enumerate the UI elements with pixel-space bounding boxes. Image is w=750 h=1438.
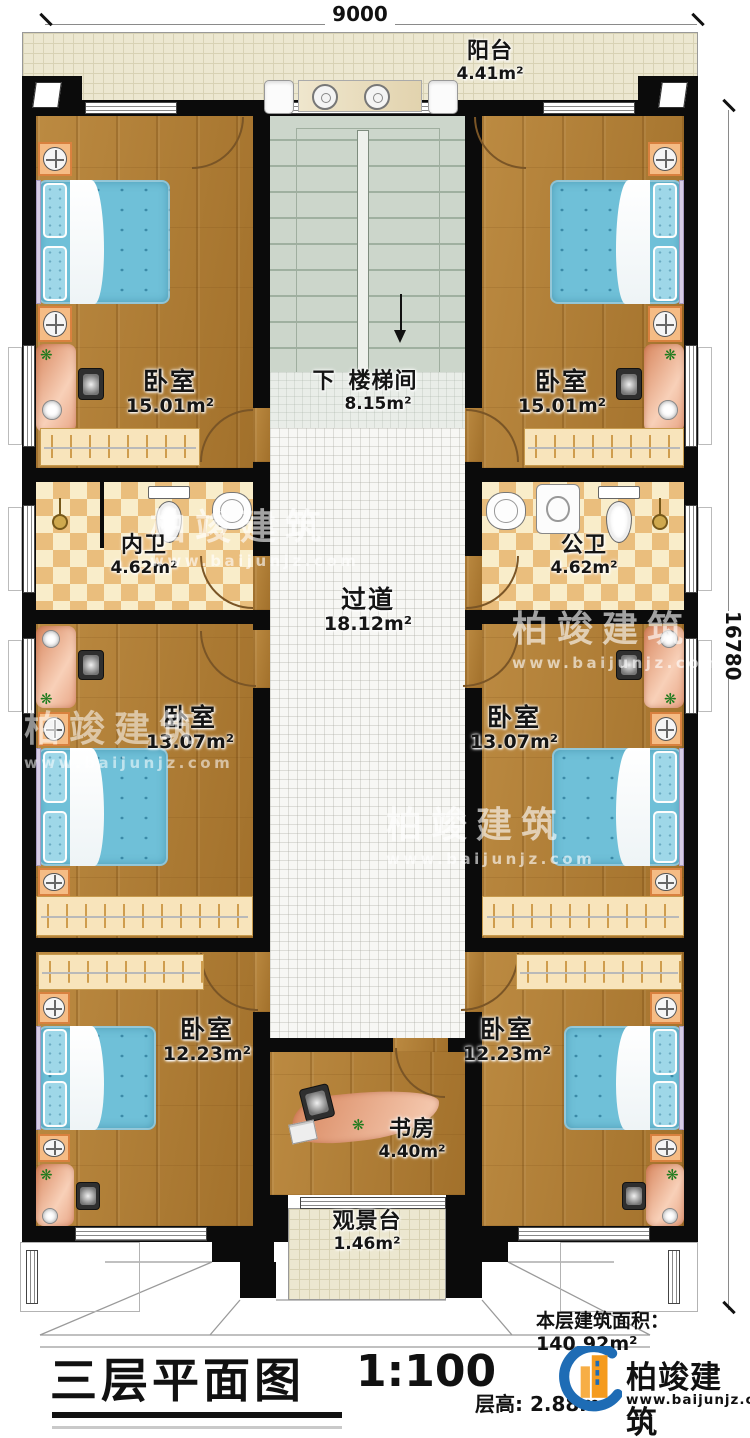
table-lamp-icon [653, 147, 677, 171]
corner-window [658, 82, 688, 108]
pillow-icon [653, 183, 677, 238]
nightstand [650, 1134, 682, 1162]
room-label-balcony: 阳台 4.41m² [430, 40, 550, 84]
threshold [253, 408, 270, 462]
table-lamp-icon [655, 1139, 677, 1157]
nightstand [38, 992, 70, 1024]
table-lamp-icon [43, 997, 65, 1019]
room-area: 4.62m² [88, 559, 200, 578]
stair-arrow-stem [400, 294, 402, 332]
window [75, 1227, 207, 1241]
window-sill [698, 347, 712, 445]
pillow-icon [43, 811, 67, 863]
room-label-bedroom-bottom-left: 卧室 12.23m² [148, 1016, 266, 1065]
deck-window [300, 1197, 446, 1209]
nightstand [38, 306, 72, 342]
room-label-bedroom-bottom-right: 卧室 12.23m² [448, 1016, 566, 1065]
company-website: www.baijunjz.com [626, 1392, 750, 1408]
pillow-icon [653, 811, 677, 863]
nightstand [38, 1134, 70, 1162]
wardrobe-icon [516, 954, 682, 990]
wall-bath-top-right [465, 468, 684, 482]
room-area: 13.07m² [452, 732, 576, 753]
table-lamp-icon [43, 1139, 65, 1157]
title-underline-2 [52, 1426, 342, 1429]
sink-icon [312, 84, 338, 110]
headboard [679, 1026, 684, 1130]
page-title: 三层平面图 [50, 1342, 305, 1411]
sink-icon [486, 492, 526, 530]
blanket-fold [616, 180, 650, 304]
window [23, 505, 35, 593]
table-lamp-icon [43, 717, 65, 741]
bed-icon [564, 1026, 682, 1130]
water-heater-icon [264, 80, 294, 114]
window-sill [698, 640, 712, 712]
wall-bath-top-left [22, 468, 270, 482]
pillow-icon [653, 751, 677, 803]
floor-plan-page: 阳台 4.41m² 卧室 15.01m² 卧室 15.01m² 下楼梯间 8.1… [0, 0, 750, 1438]
porch-outline [20, 1242, 140, 1312]
window [23, 345, 35, 447]
bed-icon [550, 180, 682, 304]
room-name: 卧室 [452, 704, 576, 732]
room-area: 15.01m² [108, 396, 232, 417]
nightstand [648, 306, 682, 342]
room-name: 卧室 [148, 1016, 266, 1044]
blanket-fold [70, 748, 104, 866]
room-area: 4.62m² [528, 559, 640, 578]
window-sill [698, 507, 712, 591]
headboard [36, 1026, 41, 1130]
monitor-icon [78, 368, 104, 400]
room-name: 公卫 [528, 534, 640, 559]
bed-icon [38, 180, 170, 304]
nightstand [650, 992, 682, 1024]
room-area: 18.12m² [308, 614, 428, 635]
dimension-line-right [728, 110, 729, 1310]
room-label-bedroom-top-right: 卧室 15.01m² [500, 368, 624, 417]
room-name: 内卫 [88, 534, 200, 559]
floor-lamp-icon [42, 400, 62, 420]
room-area: 13.07m² [128, 732, 252, 753]
dimension-height: 16780 [723, 611, 745, 675]
plant-icon [666, 1168, 679, 1183]
bed-icon [552, 748, 682, 866]
room-label-viewing-deck: 观景台 1.46m² [300, 1210, 434, 1254]
monitor-icon [622, 1182, 646, 1210]
wall-center-left [253, 688, 270, 952]
headboard [679, 748, 684, 866]
window-sill [8, 507, 22, 591]
room-label-corridor: 过道 18.12m² [308, 586, 428, 635]
floor-lamp-icon [42, 630, 60, 648]
plant-icon [40, 348, 53, 363]
table-lamp-icon [653, 311, 677, 337]
monitor-icon [78, 650, 104, 680]
stair-down-arrow-icon [394, 330, 406, 343]
room-label-bath-inner: 内卫 4.62m² [88, 534, 200, 578]
threshold [253, 556, 270, 610]
nightstand [38, 142, 72, 176]
nightstand [648, 142, 682, 176]
room-area: 1.46m² [300, 1235, 434, 1254]
monitor-icon [616, 650, 642, 680]
wardrobe-icon [524, 428, 684, 466]
nightstand [38, 868, 70, 896]
dimension-width: 9000 [325, 2, 395, 26]
table-lamp-icon [43, 873, 65, 891]
nightstand [38, 712, 70, 746]
table-lamp-icon [43, 311, 67, 337]
wall-mid-divider-right [465, 938, 684, 952]
company-logo-icon [556, 1346, 622, 1420]
room-name: 卧室 [500, 368, 624, 396]
floor-area-label: 本层建筑面积： [536, 1310, 669, 1332]
room-label-bedroom-top-left: 卧室 15.01m² [108, 368, 232, 417]
bed-icon [38, 1026, 156, 1130]
pillow-icon [43, 1029, 67, 1075]
wardrobe-icon [38, 954, 204, 990]
shower-icon [652, 514, 668, 530]
window [668, 1250, 680, 1304]
wall-bath-bottom-right [465, 610, 684, 624]
table-lamp-icon [43, 147, 67, 171]
pillow-icon [653, 246, 677, 301]
window [23, 638, 35, 714]
monitor-icon [76, 1182, 100, 1210]
room-name: 书房 [362, 1118, 462, 1143]
room-name: 卧室 [448, 1016, 566, 1044]
window [543, 102, 635, 114]
plant-icon [664, 348, 677, 363]
sink-icon [212, 492, 252, 530]
room-label-bath-public: 公卫 4.62m² [528, 534, 640, 578]
room-label-study: 书房 4.40m² [362, 1118, 462, 1162]
blanket-fold [616, 1026, 650, 1130]
table-lamp-icon [655, 873, 677, 891]
floor-lamp-icon [42, 1208, 58, 1224]
window [685, 505, 697, 593]
floor-lamp-icon [660, 630, 678, 648]
wall-center-right [465, 100, 482, 408]
room-area: 15.01m² [500, 396, 624, 417]
pillow-icon [653, 1081, 677, 1127]
corner-window [32, 82, 62, 108]
headboard [36, 748, 41, 866]
table-lamp-icon [655, 997, 677, 1019]
room-name: 阳台 [430, 40, 550, 65]
headboard [679, 180, 684, 304]
wall-mid-divider-left [22, 938, 270, 952]
floor-height-label: 层高: [475, 1392, 523, 1416]
wardrobe-icon [482, 896, 684, 936]
dimension-tick [722, 99, 735, 112]
title-underline [52, 1412, 342, 1418]
room-area: 8.15m² [283, 395, 447, 414]
window [518, 1227, 650, 1241]
nightstand [650, 868, 682, 896]
blanket-fold [616, 748, 650, 866]
floor-lamp-icon [662, 1208, 678, 1224]
plant-icon [664, 692, 677, 707]
pillow-icon [43, 183, 67, 238]
stair-rail [357, 130, 369, 372]
room-label-bedroom-mid-left: 卧室 13.07m² [128, 704, 252, 753]
bed-icon [38, 748, 168, 866]
shower-icon [52, 514, 68, 530]
room-label-stairwell: 下楼梯间 8.15m² [283, 370, 447, 414]
room-area: 4.40m² [362, 1143, 462, 1162]
headboard [36, 180, 41, 304]
pillow-icon [653, 1029, 677, 1075]
room-area: 4.41m² [430, 65, 550, 84]
corridor-floor [270, 428, 465, 1038]
plant-icon [40, 1168, 53, 1183]
floor-lamp-icon [658, 400, 678, 420]
plant-icon [40, 692, 53, 707]
wardrobe-icon [36, 896, 253, 936]
water-heater-icon [428, 80, 458, 114]
room-name: 卧室 [108, 368, 232, 396]
window-sill [8, 347, 22, 445]
sink-icon [364, 84, 390, 110]
window-sill [8, 640, 22, 712]
blanket-fold [70, 1026, 104, 1130]
window [685, 345, 697, 447]
wall-bath-bottom-left [22, 610, 270, 624]
stairs-direction: 下 [312, 369, 334, 394]
window [26, 1250, 38, 1304]
nightstand [650, 712, 682, 746]
room-name: 观景台 [300, 1210, 434, 1235]
washing-machine-icon [536, 484, 580, 534]
room-name: 卧室 [128, 704, 252, 732]
room-name: 过道 [308, 586, 428, 614]
room-name: 楼梯间 [349, 369, 418, 394]
room-area: 12.23m² [148, 1044, 266, 1065]
window [685, 638, 697, 714]
room-label-bedroom-mid-right: 卧室 13.07m² [452, 704, 576, 753]
wall-study-top [253, 1038, 393, 1052]
pillow-icon [43, 751, 67, 803]
room-area: 12.23m² [448, 1044, 566, 1065]
wall-center-left [253, 100, 270, 408]
blanket-fold [70, 180, 104, 304]
pillow-icon [43, 246, 67, 301]
wardrobe-icon [40, 428, 200, 466]
window [85, 102, 177, 114]
pillow-icon [43, 1081, 67, 1127]
table-lamp-icon [655, 717, 677, 741]
